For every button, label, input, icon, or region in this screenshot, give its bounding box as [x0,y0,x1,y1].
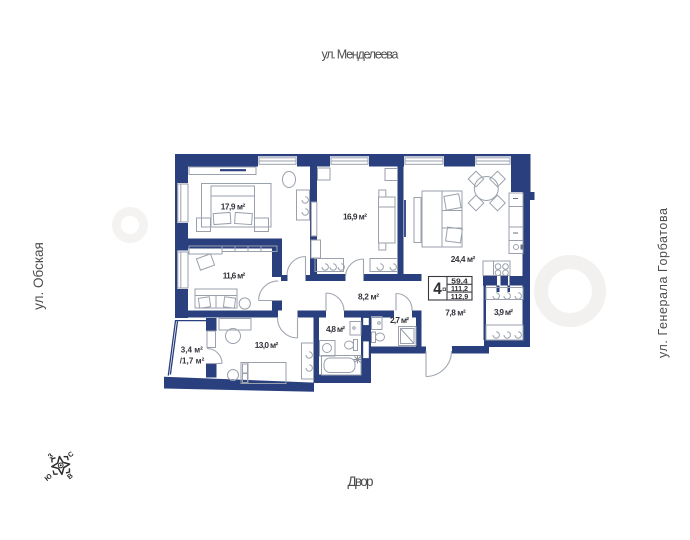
svg-text:24,4 м²: 24,4 м² [451,254,476,264]
svg-text:13,0 м²: 13,0 м² [255,340,279,350]
svg-text:/1,7 м²: /1,7 м² [180,357,205,366]
svg-text:3,4 м²: 3,4 м² [181,346,203,355]
svg-text:7,8 м²: 7,8 м² [445,308,466,318]
svg-text:8,2 м²: 8,2 м² [358,292,379,302]
svg-text:11,6 м²: 11,6 м² [223,271,246,281]
svg-text:ул. Менделеева: ул. Менделеева [322,48,399,62]
svg-text:17,9 м²: 17,9 м² [221,202,246,212]
svg-text:3,9 м²: 3,9 м² [494,307,513,317]
svg-text:2,7 м²: 2,7 м² [390,315,409,325]
svg-text:4,8 м²: 4,8 м² [326,324,345,334]
svg-text:ул. Генерала Горбатова: ул. Генерала Горбатова [656,208,670,358]
svg-text:Двор: Двор [348,474,374,489]
svg-text:112,9: 112,9 [451,292,469,301]
svg-text:16,9 м²: 16,9 м² [343,212,367,222]
svg-text:ул. Обская: ул. Обская [31,242,46,310]
svg-text:4: 4 [433,280,442,298]
